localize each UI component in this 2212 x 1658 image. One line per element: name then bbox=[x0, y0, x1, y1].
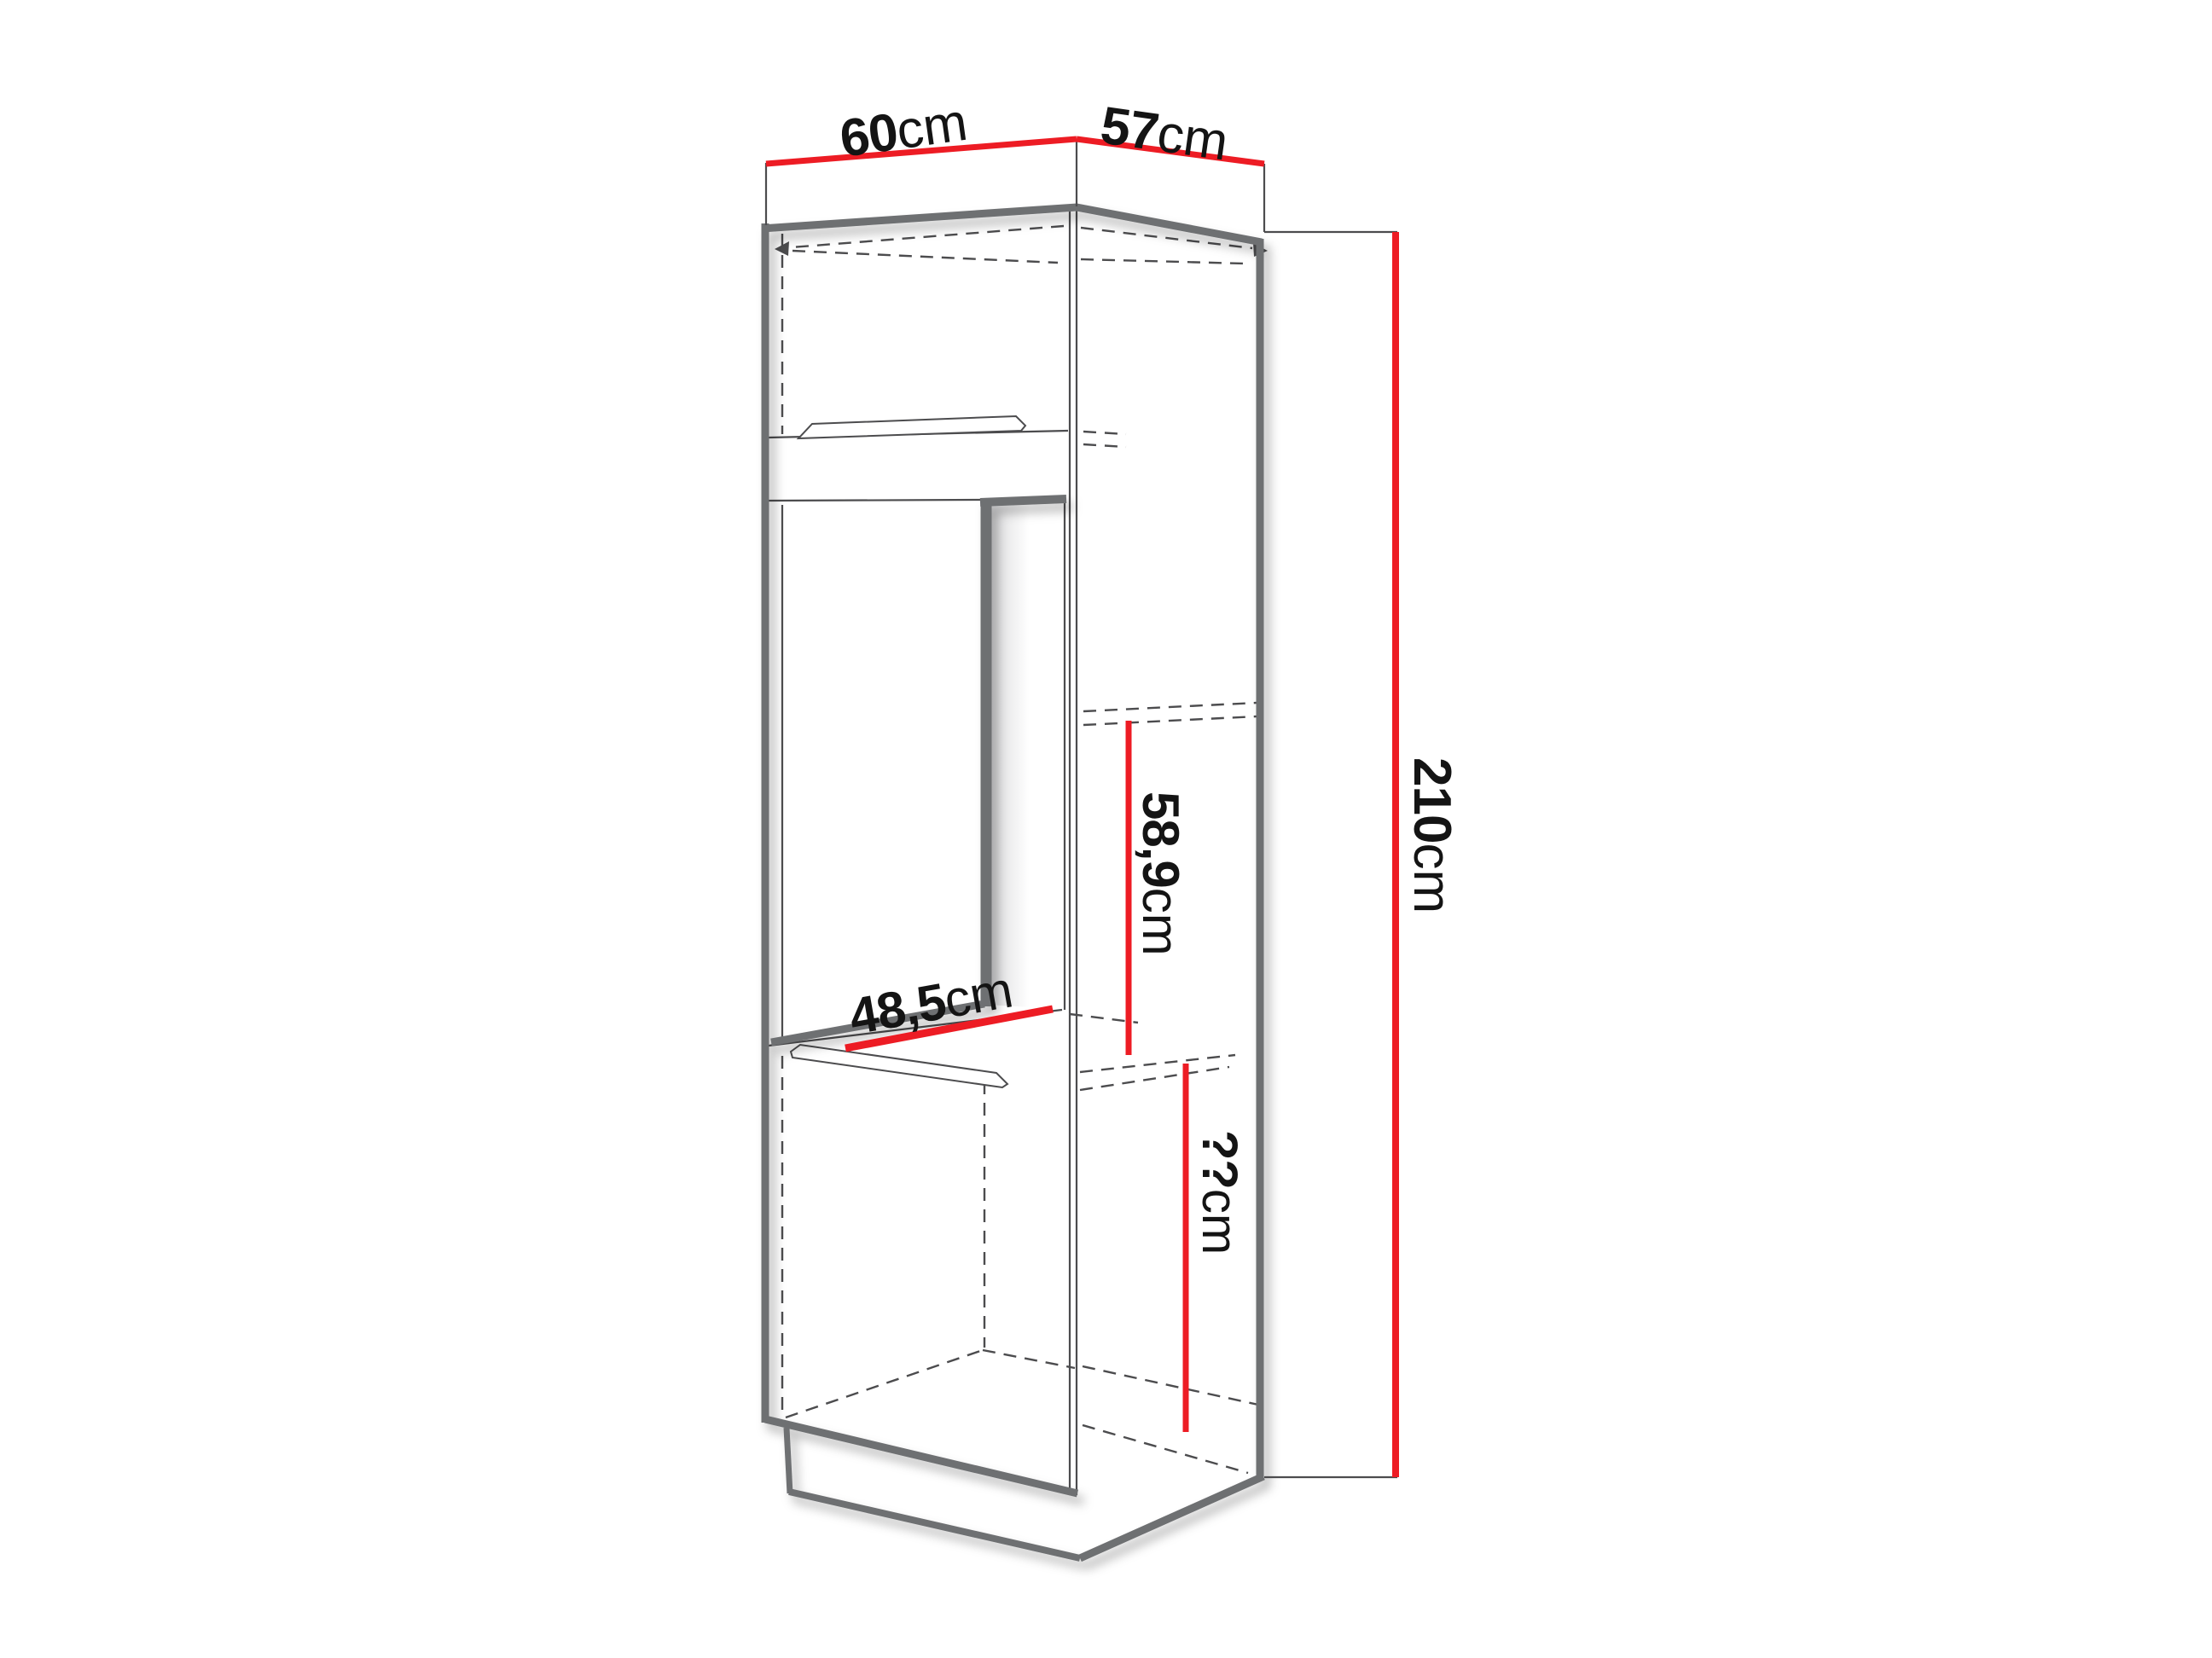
niche-right-wall bbox=[985, 499, 1065, 1009]
niche-top-edge bbox=[980, 499, 1066, 502]
label-bottom-section-cm: ??cm bbox=[1192, 1130, 1247, 1255]
label-depth-57cm: 57cm bbox=[1097, 96, 1232, 172]
label-height-210cm: 210cm bbox=[1402, 757, 1461, 913]
label-niche-height-58-9cm: 58,9cm bbox=[1132, 791, 1189, 956]
label-width-60cm: 60cm bbox=[836, 93, 971, 169]
diagram-canvas: 60cm 57cm 210cm 58,9cm ??cm 48,5cm bbox=[0, 0, 2212, 1658]
cabinet-dimension-diagram: 60cm 57cm 210cm 58,9cm ??cm 48,5cm bbox=[0, 0, 2212, 1658]
niche-top-line bbox=[769, 500, 981, 501]
plinth-left-edge bbox=[787, 1428, 790, 1493]
